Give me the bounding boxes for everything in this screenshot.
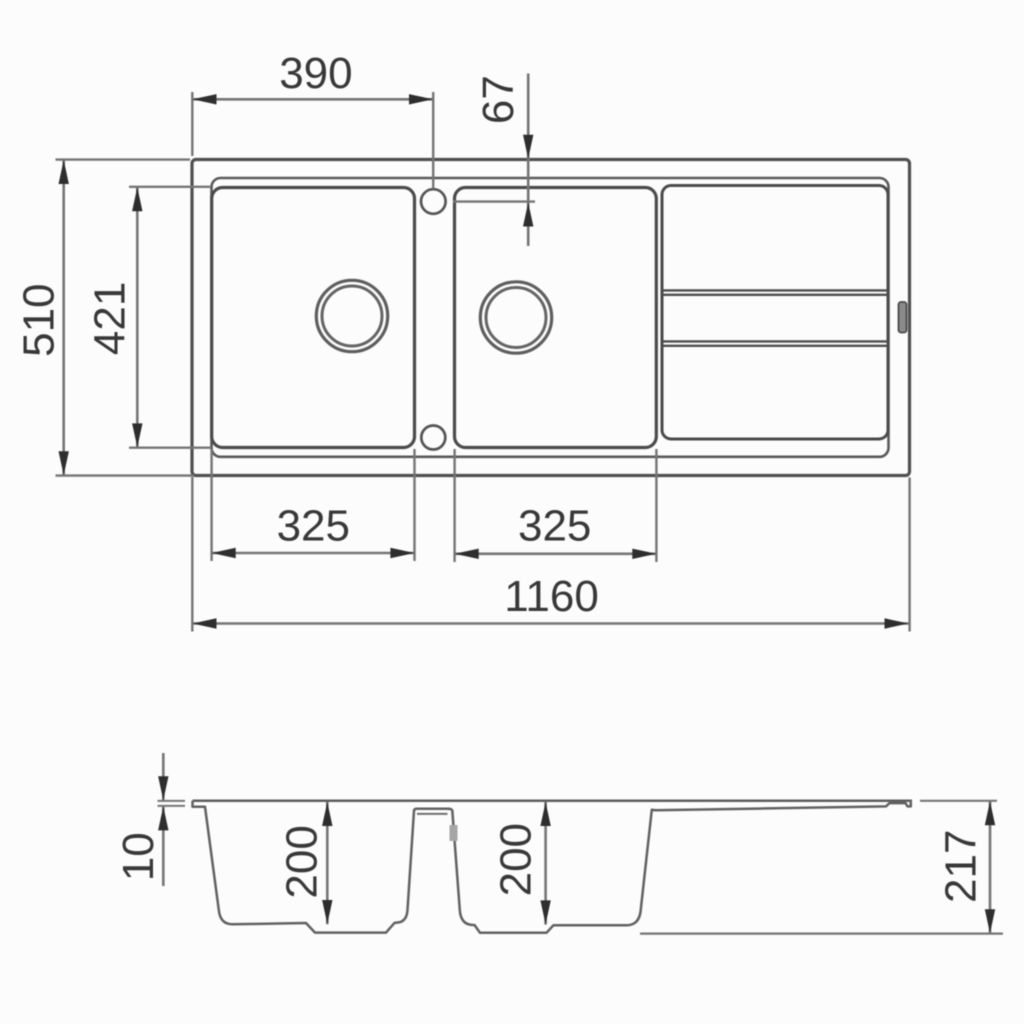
svg-text:1160: 1160 (504, 572, 599, 621)
svg-text:325: 325 (277, 502, 350, 551)
svg-text:421: 421 (86, 282, 135, 355)
svg-text:217: 217 (936, 830, 985, 903)
svg-text:200: 200 (492, 823, 541, 896)
svg-text:390: 390 (279, 49, 352, 98)
svg-text:325: 325 (518, 502, 591, 551)
svg-text:10: 10 (114, 832, 163, 881)
svg-text:200: 200 (278, 825, 327, 898)
svg-text:510: 510 (15, 283, 64, 356)
svg-text:67: 67 (474, 75, 523, 124)
